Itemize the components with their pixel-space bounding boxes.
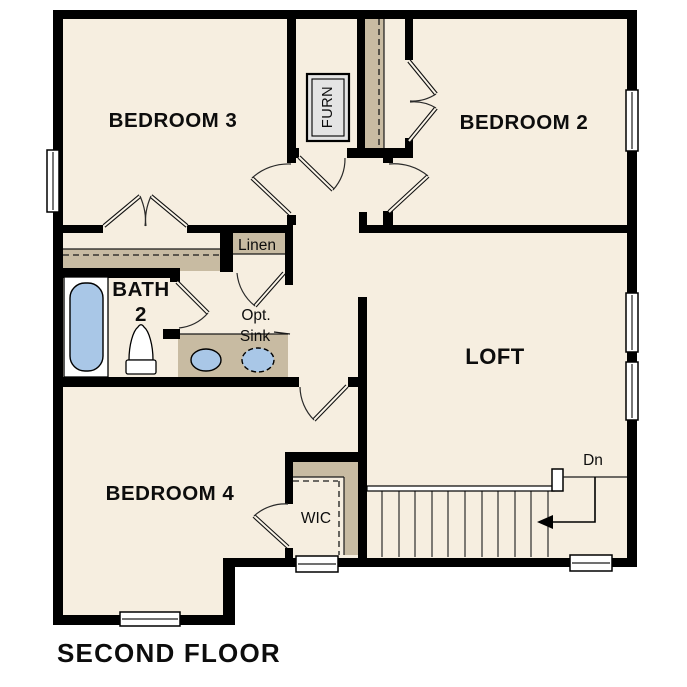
loft-label: LOFT bbox=[465, 344, 524, 369]
bedroom3-label: BEDROOM 3 bbox=[109, 109, 238, 132]
stair-landing-window bbox=[570, 555, 612, 571]
bedroom4-window bbox=[120, 612, 180, 626]
down-label: Dn bbox=[583, 452, 603, 469]
stair-handrail bbox=[367, 486, 554, 491]
bedroom4-label: BEDROOM 4 bbox=[106, 482, 235, 505]
opt-sink-label-line1: Opt. bbox=[241, 307, 270, 324]
floor-plan-page: FURN bbox=[0, 0, 687, 687]
plan-title: SECOND FLOOR bbox=[57, 638, 281, 668]
furnace-label: FURN bbox=[320, 86, 336, 128]
bedroom3-closet-shelf bbox=[63, 249, 220, 271]
wic-shelf-right bbox=[344, 477, 358, 555]
wic-shelf-top bbox=[293, 462, 358, 477]
wic-window bbox=[296, 556, 338, 572]
bedroom2-label: BEDROOM 2 bbox=[460, 111, 589, 134]
bath2-label-line2: 2 bbox=[135, 303, 147, 326]
newel-post bbox=[552, 469, 563, 491]
sink-basin bbox=[191, 349, 221, 371]
bath-vanity bbox=[178, 332, 290, 377]
loft-window-upper bbox=[626, 293, 638, 352]
bath2-label-line1: BATH bbox=[112, 278, 169, 301]
wic-label: WIC bbox=[301, 510, 331, 527]
furnace-unit: FURN bbox=[307, 74, 349, 141]
bedroom2-window bbox=[626, 90, 638, 151]
linen-label: Linen bbox=[238, 237, 276, 254]
toilet-tank bbox=[126, 360, 156, 374]
opt-sink-label-line2: Sink bbox=[240, 328, 270, 345]
bedroom3-window bbox=[47, 150, 59, 212]
bedroom2-closet-shelf bbox=[365, 19, 384, 148]
optional-sink-basin bbox=[242, 348, 274, 372]
second-floor-plan: FURN bbox=[0, 0, 687, 687]
loft-window-lower bbox=[626, 362, 638, 420]
bathtub bbox=[70, 283, 103, 371]
